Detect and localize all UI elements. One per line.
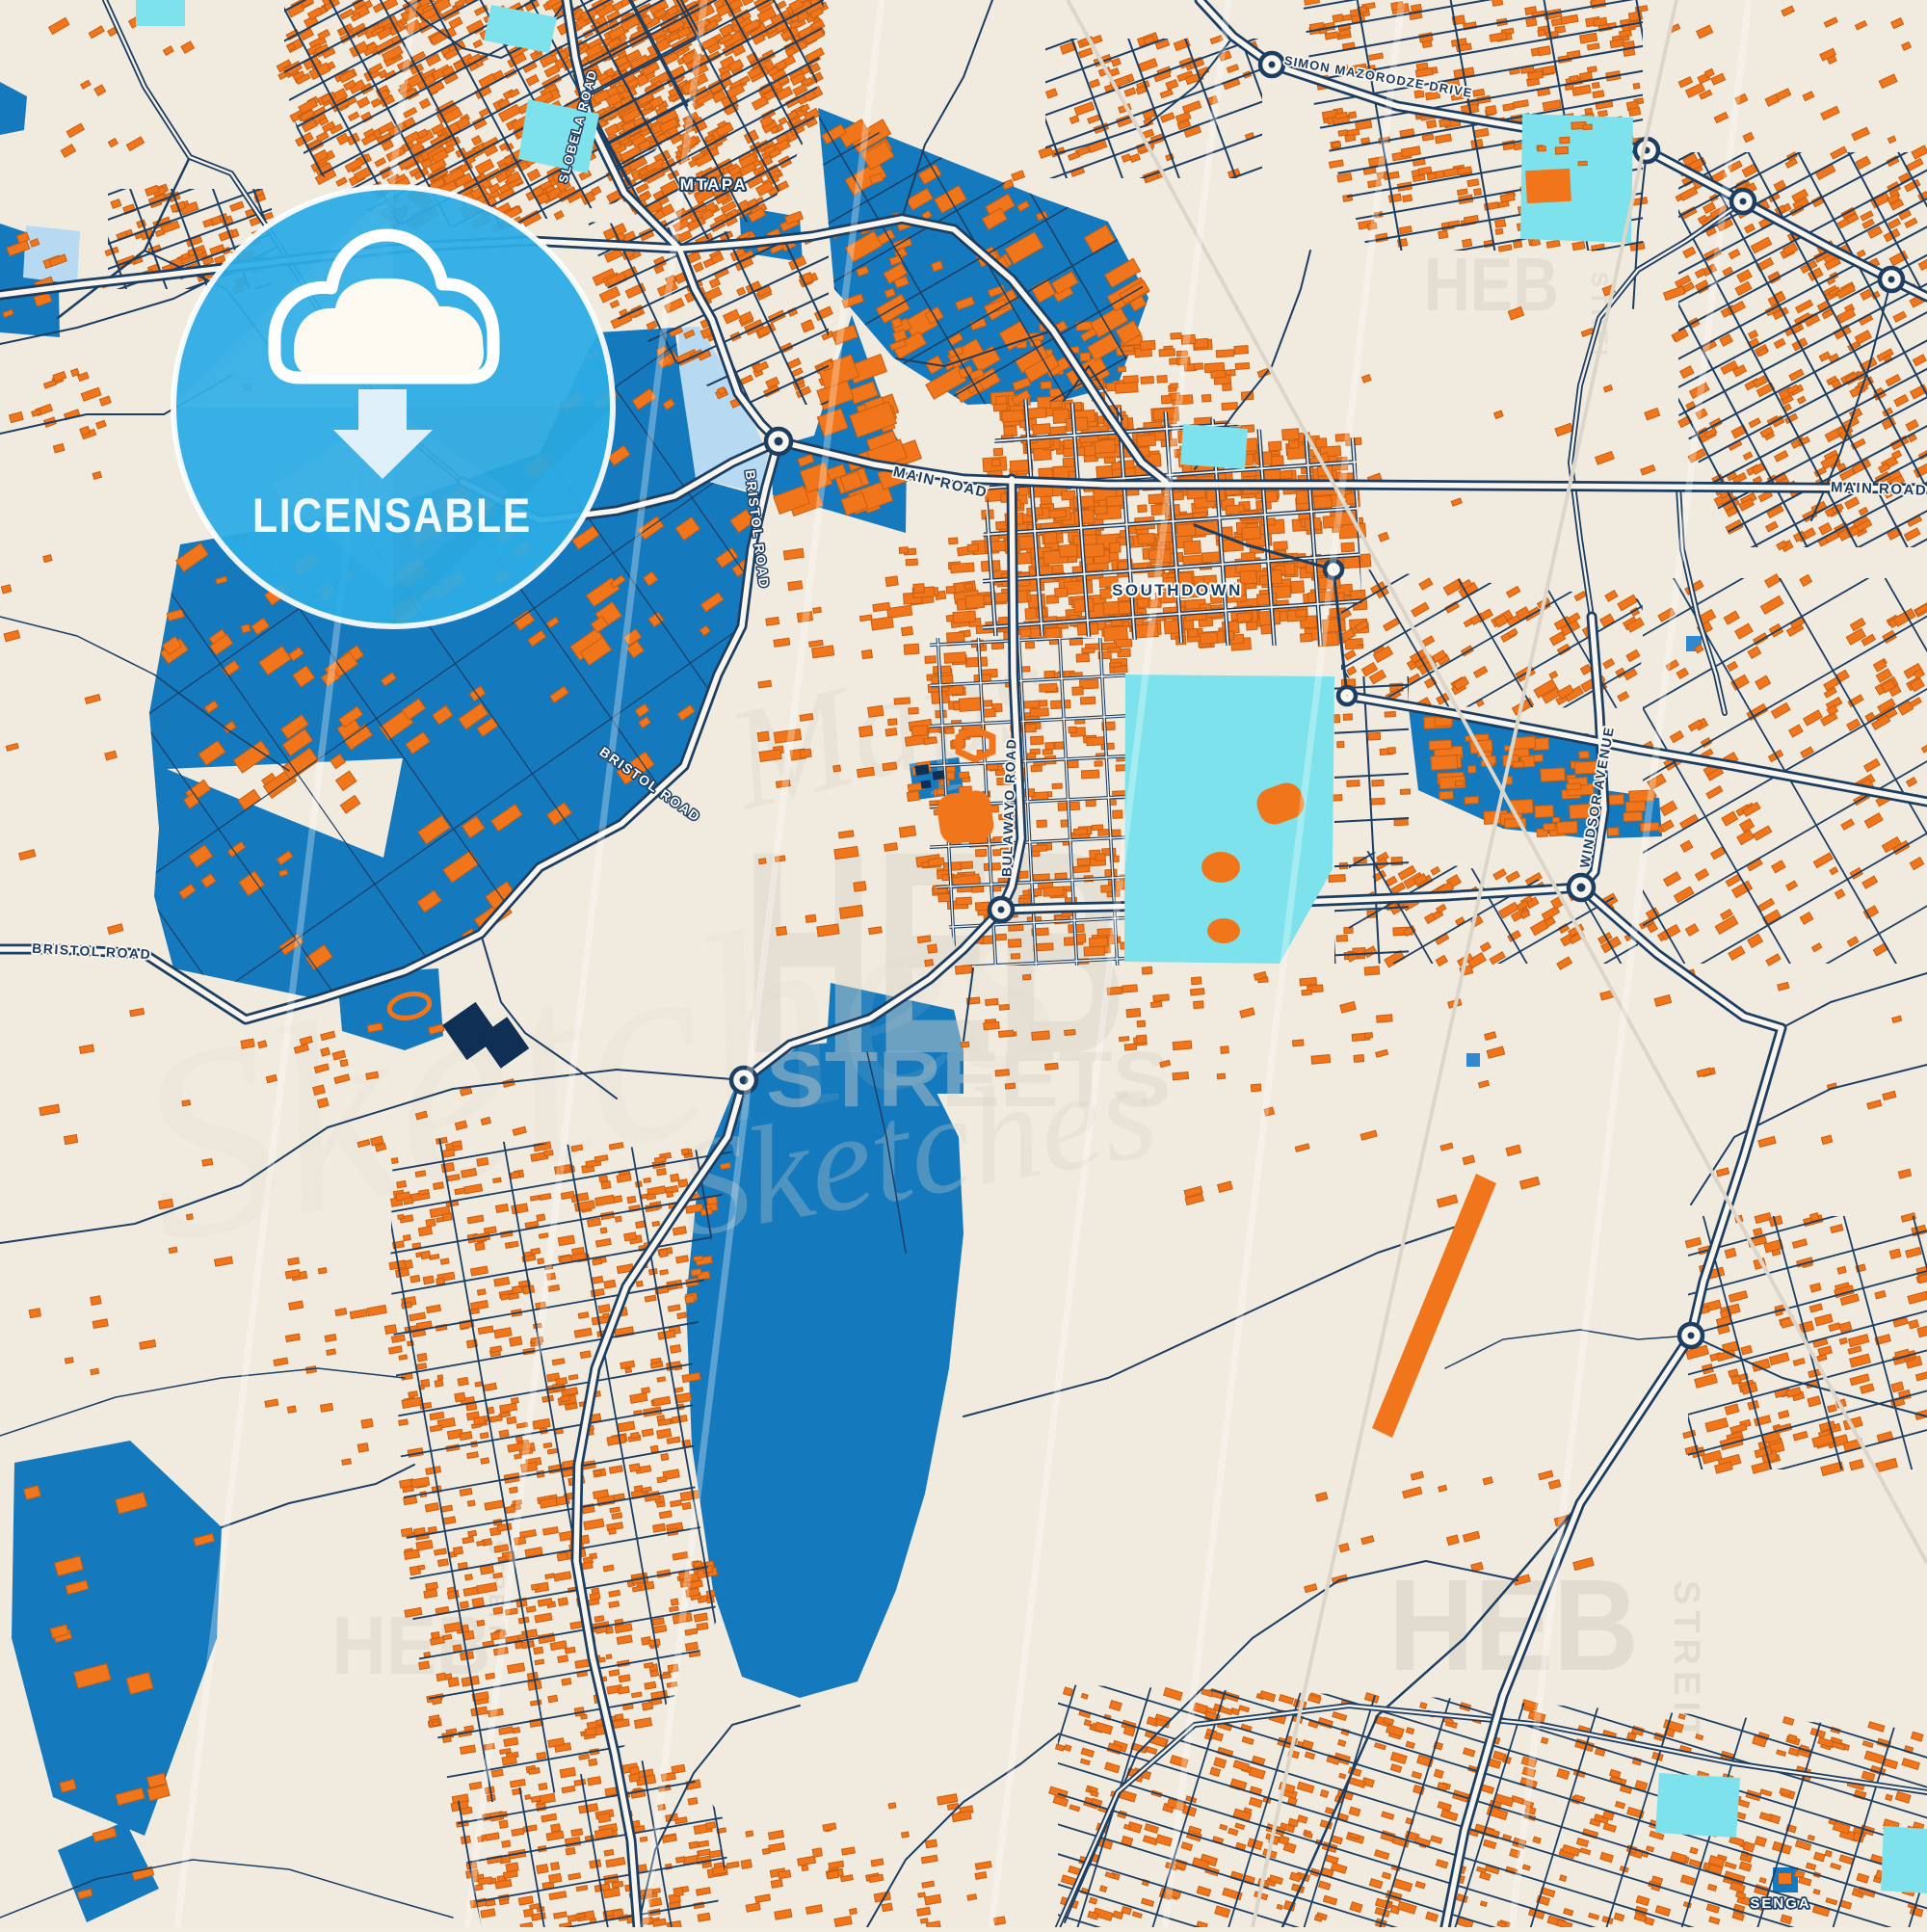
svg-text:HEB: HEB (1424, 242, 1559, 327)
svg-text:STREIT: STREIT (1666, 1580, 1706, 1745)
